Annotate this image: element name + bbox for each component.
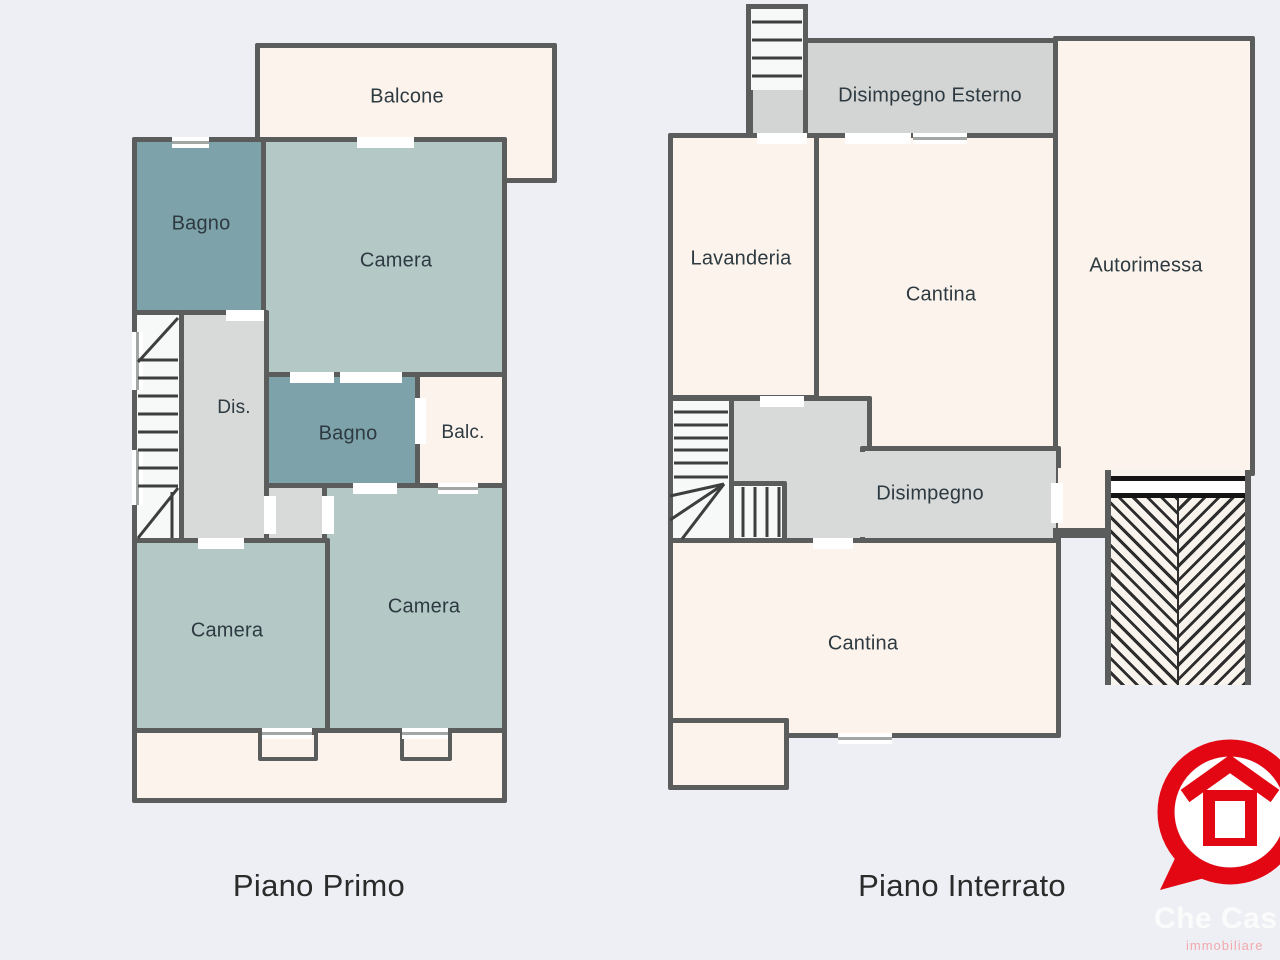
agency-logo-tagline: immobiliare (1186, 938, 1263, 953)
room-label-disimpegno: Disimpegno (876, 483, 984, 506)
floorplan-canvas: Balcone Bagno Camera Dis. Bagno Balc. Ca… (0, 0, 1280, 960)
room-label-cantina-bottom: Cantina (828, 633, 898, 656)
room-label-disimpegno-esterno: Disimpegno Esterno (838, 85, 1022, 108)
room-dis-corridor (179, 310, 269, 543)
room-label-camera-se: Camera (388, 596, 460, 619)
wall-seam-patch (858, 452, 874, 537)
ramp-hatch-right (1178, 498, 1245, 685)
window-gap (838, 733, 892, 744)
door-gap (290, 372, 334, 383)
door-gap (757, 133, 807, 144)
passage-bottom-wall (1053, 528, 1113, 538)
room-label-lavanderia: Lavanderia (691, 248, 792, 271)
door-gap (353, 483, 397, 494)
garage-passage (1058, 468, 1105, 530)
door-gap (813, 538, 853, 549)
window-gap (438, 483, 478, 494)
room-label-balc: Balc. (441, 422, 484, 444)
ramp-hatching (1111, 498, 1245, 685)
agency-logo-brand-text: Che Cas (1154, 902, 1278, 936)
room-label-camera-sw: Camera (191, 620, 263, 643)
window-gap (172, 137, 209, 148)
garage-ramp (1105, 470, 1251, 685)
stair-treads-first-floor (132, 310, 184, 543)
stair-treads-basement-horizontal (729, 481, 787, 543)
stair-treads-exterior (746, 4, 808, 90)
ramp-center-line (1177, 498, 1179, 685)
room-label-dis: Dis. (217, 397, 251, 419)
room-label-bagno-mid: Bagno (319, 423, 378, 446)
door-gap (357, 137, 414, 148)
door-gap (415, 398, 426, 444)
garage-door (1111, 476, 1245, 498)
plan-title-piano-primo: Piano Primo (233, 868, 405, 904)
door-gap (340, 372, 402, 383)
door-gap (760, 396, 804, 407)
room-label-cantina-top: Cantina (906, 284, 976, 307)
room-label-bagno-top: Bagno (172, 213, 231, 236)
door-gap (845, 133, 911, 144)
room-label-autorimessa: Autorimessa (1089, 255, 1202, 278)
door-gap (226, 310, 264, 321)
wall-seam-patch (674, 723, 783, 737)
exterior-staircase-walls (746, 88, 808, 136)
plan-title-piano-interrato: Piano Interrato (858, 868, 1066, 904)
door-gap (264, 496, 276, 534)
window-gap (402, 728, 448, 739)
stair-treads-basement-vertical (668, 396, 734, 543)
ramp-hatch-left (1111, 498, 1178, 685)
door-gap (1051, 483, 1063, 523)
window-gap (913, 133, 967, 144)
room-label-balcone: Balcone (370, 86, 444, 109)
door-gap (322, 496, 334, 534)
agency-logo: Che Cas immobiliare (1148, 722, 1280, 960)
window-gap (262, 728, 312, 739)
room-label-camera-top: Camera (360, 250, 432, 273)
door-gap (198, 538, 244, 549)
